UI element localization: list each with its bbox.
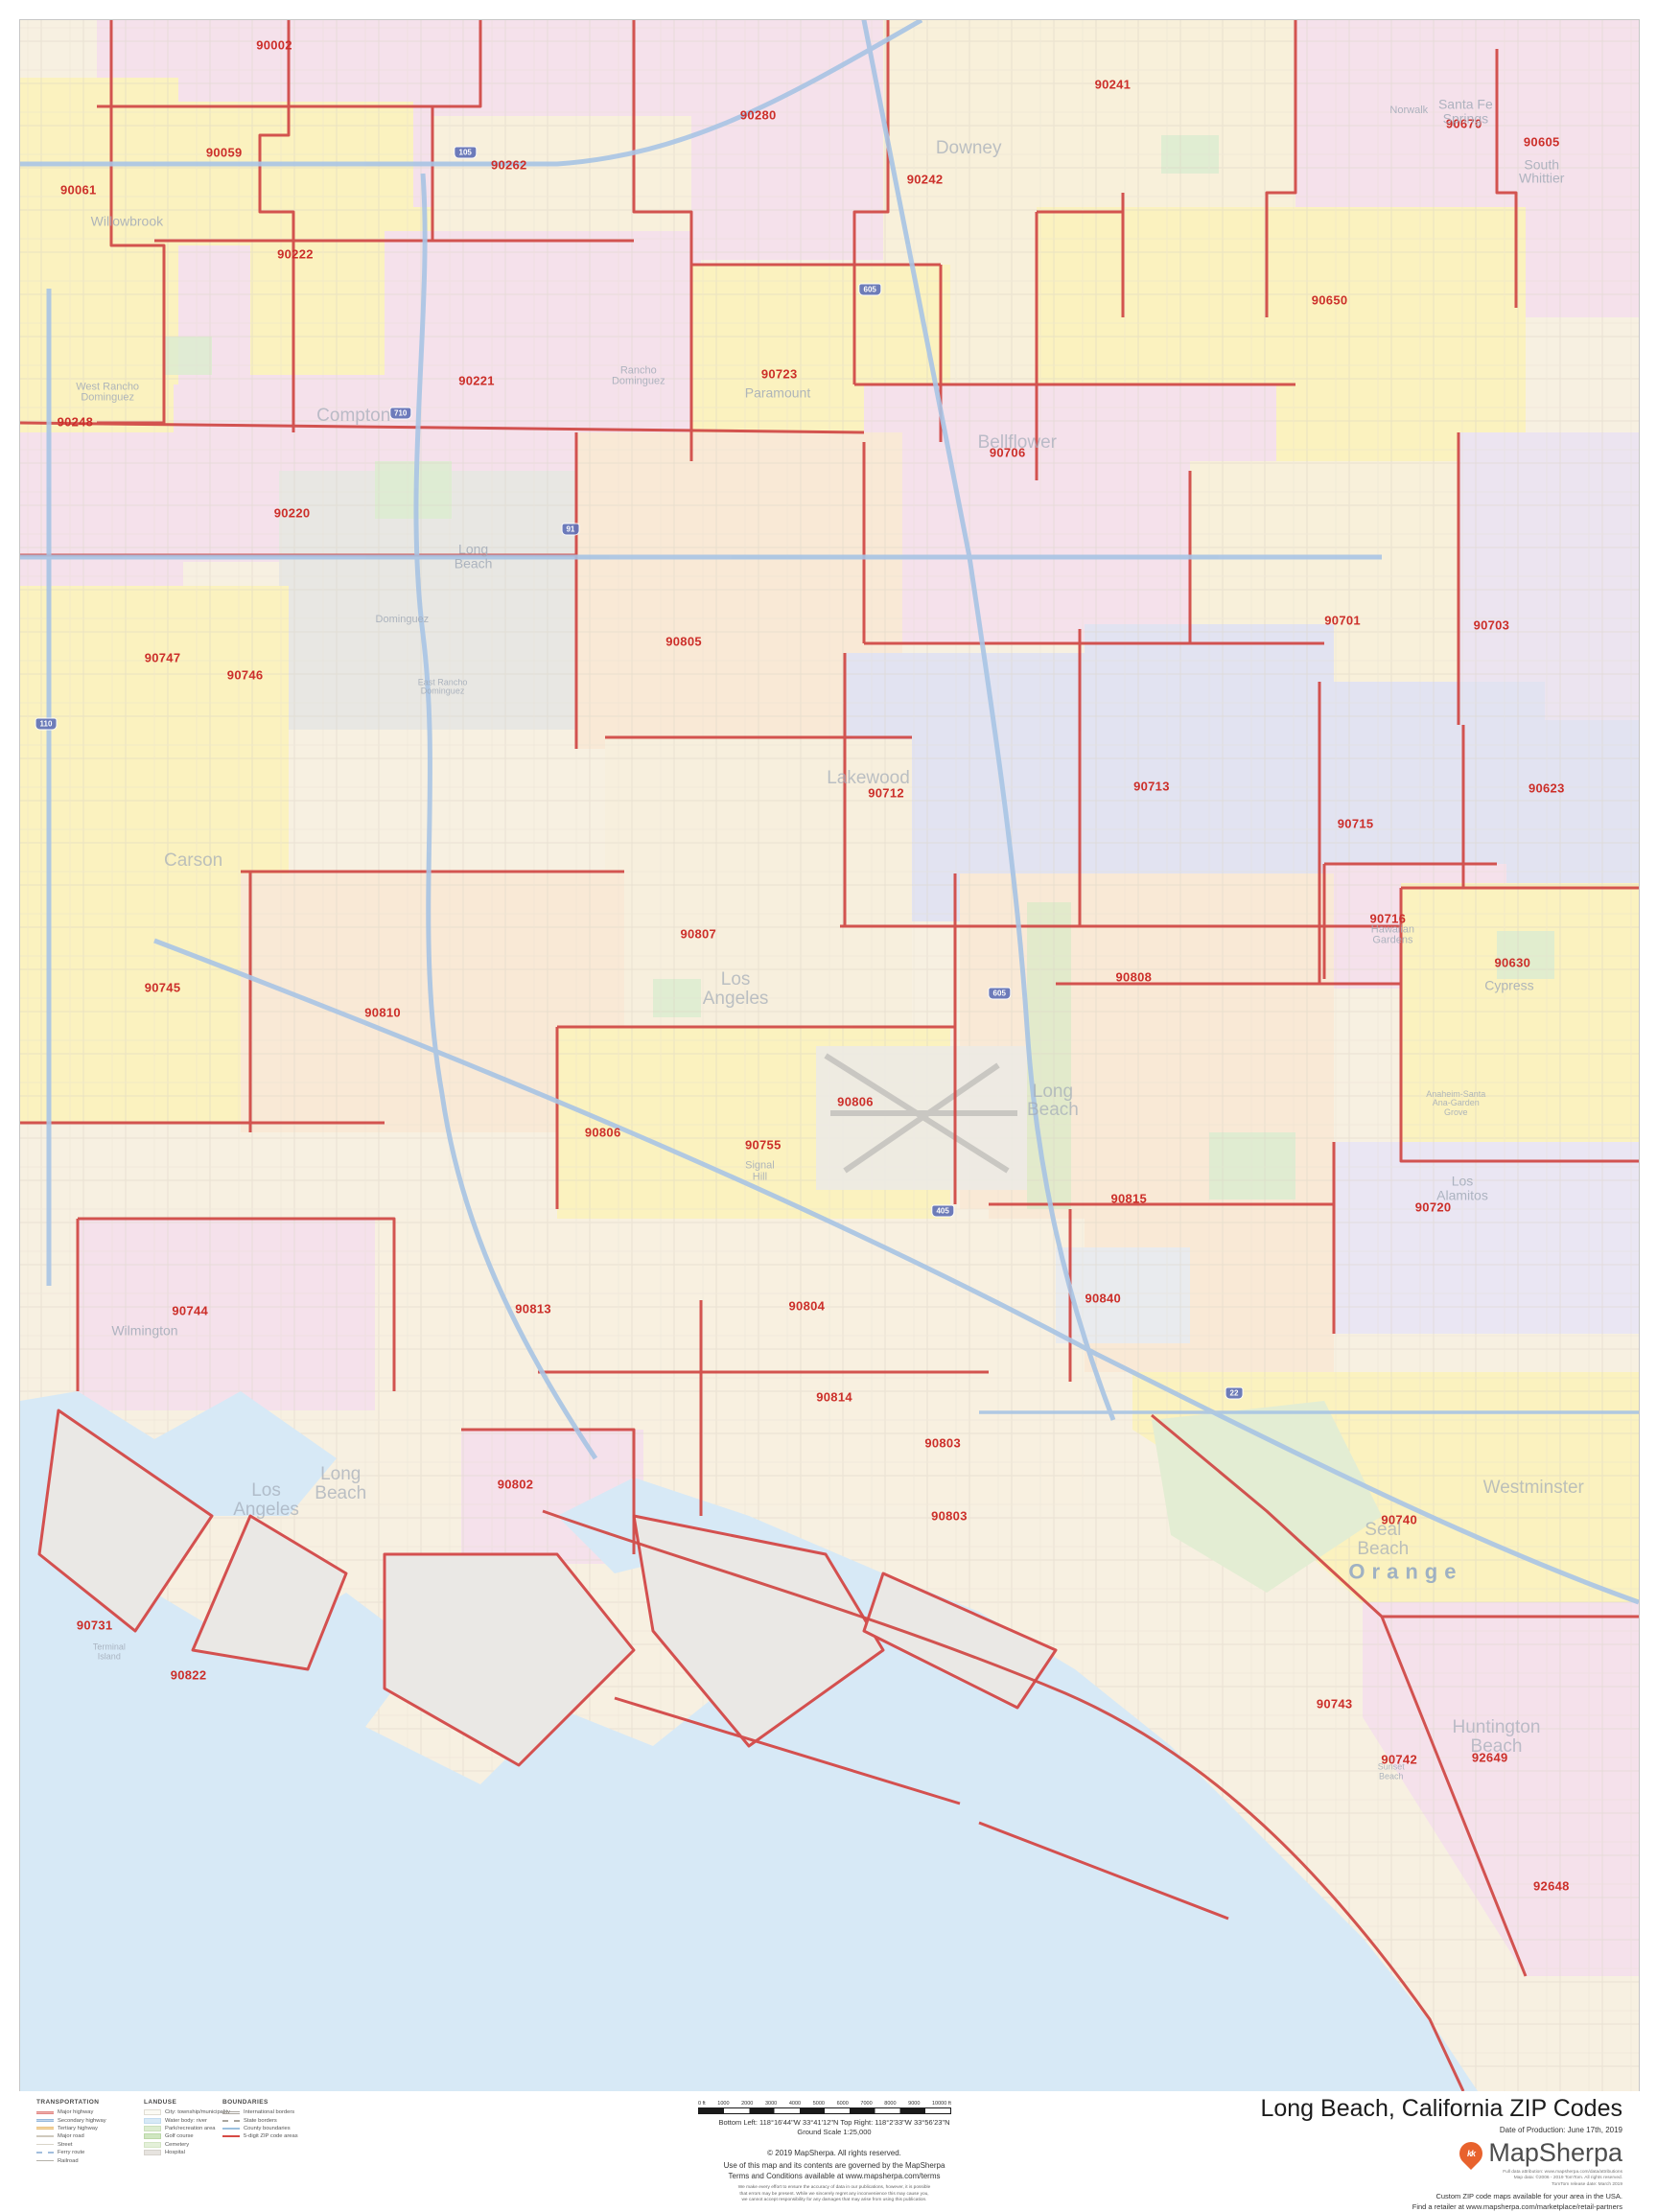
scale-tick-label: 7000 (860, 2101, 872, 2107)
map-graphics (20, 20, 1639, 2091)
legend-swatch (36, 2160, 54, 2161)
scale-tick-label: 9000 (908, 2101, 920, 2107)
mapsherpa-pin-icon: kk (1455, 2137, 1487, 2170)
legend-item: County boundaries (222, 2125, 366, 2132)
title-block: Long Beach, California ZIP Codes Date of… (1260, 2095, 1622, 2212)
legend-item: Cemetery (144, 2141, 278, 2149)
legend-swatch (36, 2144, 54, 2145)
copyright-text: © 2019 MapSherpa. All rights reserved. (585, 2149, 1084, 2157)
data-attribution: Full data attribution: www.mapsherpa.com… (1260, 2170, 1622, 2188)
legend-item: State borders (222, 2116, 366, 2124)
brand-name: MapSherpa (1488, 2138, 1622, 2168)
legend-item: Major highway (36, 2108, 152, 2116)
legend-swatch (222, 2111, 240, 2114)
legend-item: International borders (222, 2108, 366, 2116)
legend-title: TRANSPORTATION (36, 2099, 152, 2106)
legend-item: Secondary highway (36, 2116, 152, 2124)
map-footer: TRANSPORTATION Major highway Secondary h… (0, 2091, 1657, 2209)
scale-tick-label: 3000 (765, 2101, 777, 2107)
scale-tick-label: 0 ft (698, 2101, 706, 2107)
legend-swatch (144, 2142, 161, 2148)
legend-swatch (222, 2128, 240, 2130)
legend-item: Tertiary highway (36, 2125, 152, 2132)
scale-tick-label: 8000 (884, 2101, 896, 2107)
legend-item: Hospital (144, 2149, 278, 2156)
production-date: Date of Production: June 17th, 2019 (1260, 2126, 1622, 2134)
terms-text: Use of this map and its contents are gov… (585, 2161, 1084, 2181)
map-canvas: 9000290059900619022290262902809024190242… (19, 19, 1640, 2092)
legend-boundaries: BOUNDARIES International borders State b… (222, 2099, 366, 2141)
scale-tick-label: 6000 (837, 2101, 849, 2107)
legend-item: Street (36, 2141, 152, 2149)
footer-center-text: Bottom Left: 118°16'44"W 33°41'12"N Top … (585, 2118, 1084, 2203)
scale-tick-label: 5000 (813, 2101, 825, 2107)
map-poster-page: { "colors":{ "zip_label":"#cc2f2a","boun… (0, 0, 1657, 2209)
legend-swatch (144, 2150, 161, 2155)
map-title: Long Beach, California ZIP Codes (1260, 2095, 1622, 2123)
legend-swatch (144, 2118, 161, 2124)
scale-tick-label: 10000 ft (932, 2101, 951, 2107)
legend-swatch (36, 2152, 54, 2154)
legend-item: Major road (36, 2132, 152, 2140)
airport-runways (816, 1046, 1027, 1190)
legend-item: Railroad (36, 2156, 152, 2164)
legend-swatch (36, 2135, 54, 2137)
legend-item: Ferry route (36, 2149, 152, 2156)
legend-swatch (36, 2119, 54, 2122)
legend-swatch (36, 2127, 54, 2130)
legend-swatch (144, 2109, 161, 2115)
legend-transportation: TRANSPORTATION Major highway Secondary h… (36, 2099, 152, 2165)
scale-tick-label: 2000 (741, 2101, 753, 2107)
legend-title: BOUNDARIES (222, 2099, 366, 2106)
scale-ticks: 0 ft100020003000400050006000700080009000… (698, 2101, 951, 2107)
disclaimer-text: We make every effort to ensure the accur… (585, 2185, 1084, 2203)
scale-tick-label: 1000 (717, 2101, 729, 2107)
legend-swatch (36, 2111, 54, 2114)
map-extent-coordinates: Bottom Left: 118°16'44"W 33°41'12"N Top … (585, 2118, 1084, 2137)
scale-bar-block: 0 ft100020003000400050006000700080009000… (698, 2101, 951, 2114)
legend-item: 5-digit ZIP code areas (222, 2132, 366, 2140)
legend-swatch (222, 2120, 240, 2122)
scale-tick-label: 4000 (789, 2101, 801, 2107)
legend-swatch (144, 2126, 161, 2131)
scale-bar (698, 2107, 951, 2114)
legend-swatch (222, 2135, 240, 2137)
legend-swatch (144, 2133, 161, 2139)
